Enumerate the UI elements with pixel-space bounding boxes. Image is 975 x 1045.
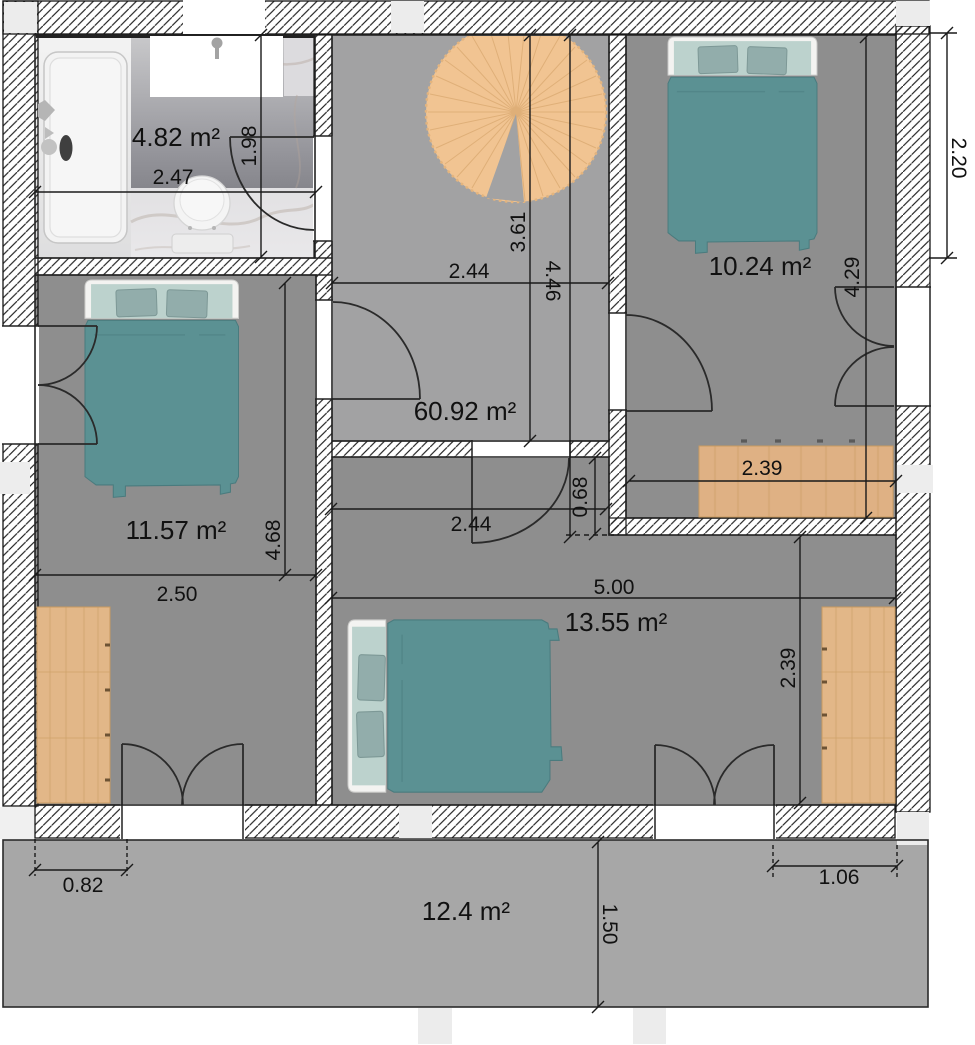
svg-text:1.06: 1.06 [819,866,860,889]
svg-text:10.24 m²: 10.24 m² [709,251,812,281]
svg-text:4.29: 4.29 [841,257,864,298]
svg-text:0.68: 0.68 [569,477,592,518]
svg-text:13.55 m²: 13.55 m² [565,607,668,637]
svg-text:4.46: 4.46 [541,261,564,302]
svg-text:2.44: 2.44 [449,260,490,283]
svg-text:2.20: 2.20 [947,138,970,179]
svg-text:2.39: 2.39 [742,457,783,480]
svg-text:2.44: 2.44 [451,513,492,536]
svg-text:0.82: 0.82 [63,874,104,897]
svg-text:60.92 m²: 60.92 m² [414,396,517,426]
svg-text:12.4 m²: 12.4 m² [422,896,510,926]
svg-text:5.00: 5.00 [594,576,635,599]
svg-text:2.50: 2.50 [157,583,198,606]
svg-text:2.39: 2.39 [777,648,800,689]
svg-text:4.68: 4.68 [262,520,285,561]
svg-text:11.57 m²: 11.57 m² [126,515,227,545]
svg-text:1.98: 1.98 [238,126,261,167]
svg-text:2.47: 2.47 [153,166,194,189]
svg-text:1.50: 1.50 [598,904,621,945]
svg-text:4.82 m²: 4.82 m² [132,122,220,152]
svg-text:3.61: 3.61 [507,212,530,253]
